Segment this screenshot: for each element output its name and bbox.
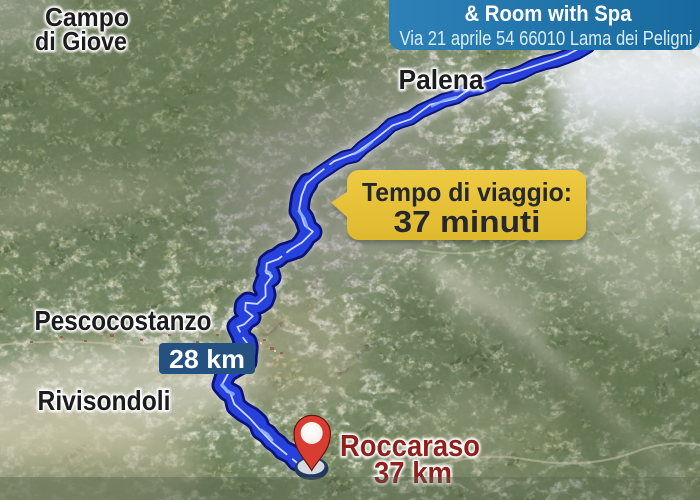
svg-text:Pescocostanzo: Pescocostanzo: [35, 305, 212, 336]
svg-text:28 km: 28 km: [169, 344, 245, 374]
svg-text:Rivisondoli: Rivisondoli: [38, 385, 171, 416]
svg-text:Palena: Palena: [399, 64, 484, 95]
svg-text:di Giove: di Giove: [35, 26, 127, 56]
svg-text:& Room with Spa: & Room with Spa: [465, 1, 633, 26]
svg-text:Tempo di viaggio:: Tempo di viaggio:: [362, 177, 572, 207]
svg-text:Via 21 aprile 54 66010 Lama de: Via 21 aprile 54 66010 Lama dei Peligni: [400, 28, 693, 50]
svg-text:37 minuti: 37 minuti: [394, 204, 541, 239]
